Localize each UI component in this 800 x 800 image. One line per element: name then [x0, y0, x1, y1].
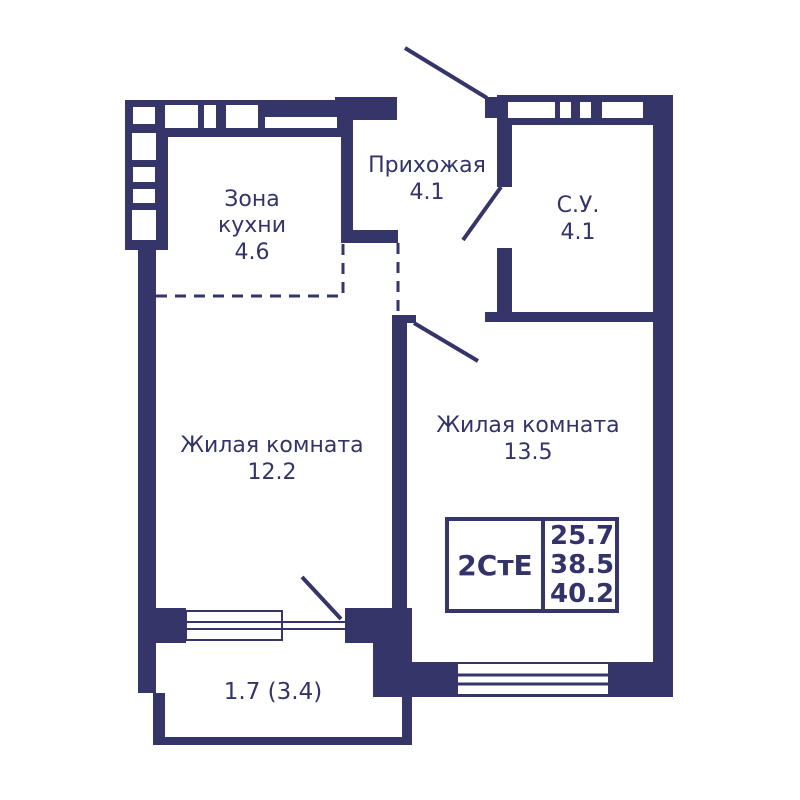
vent-cutout	[133, 107, 155, 124]
entrance-door-swing	[405, 48, 487, 98]
room-area: 4.1	[347, 180, 507, 206]
room-label-living-left: Жилая комната 12.2	[142, 433, 402, 486]
room-name: Жилая комната	[142, 433, 402, 459]
wall-hall-niche-bottom	[341, 230, 398, 243]
apartment-type: 2СтЕ	[449, 521, 545, 609]
vent-cutout	[165, 105, 198, 128]
room-door-swing	[414, 323, 478, 361]
area-living: 25.7	[550, 522, 615, 551]
balcony-window	[185, 610, 283, 641]
room-area: 4.6	[187, 240, 317, 266]
room-area: 12.2	[142, 460, 402, 486]
balcony-door-swing	[302, 577, 341, 619]
vent-cutout	[132, 133, 156, 160]
vent-cutout	[133, 189, 155, 203]
room-area: 4.1	[518, 220, 638, 246]
vent-cutout	[560, 102, 571, 118]
room-label-living-right: Жилая комната 13.5	[398, 413, 658, 466]
apartment-areas: 25.7 38.5 40.2	[545, 521, 615, 609]
room-area: 13.5	[398, 440, 658, 466]
vent-cutout	[226, 105, 258, 128]
wall-divider-lower	[373, 643, 412, 697]
vent-cutout	[580, 102, 591, 118]
vent-cutout	[132, 210, 156, 240]
wall-right-outer	[653, 95, 673, 697]
balcony-rail-bottom	[153, 737, 411, 745]
vent-cutout	[265, 117, 337, 128]
room-label-balcony: 1.7 (3.4)	[173, 679, 373, 705]
room-name: Прихожая	[347, 153, 507, 179]
vent-cutout	[602, 102, 643, 118]
floor-plan: Зона кухни 4.6 Прихожая 4.1 С.У. 4.1 Жил…	[0, 0, 800, 800]
room-name: Зона кухни	[187, 187, 317, 239]
vent-cutout	[204, 105, 216, 128]
balcony-rail-right	[402, 695, 412, 745]
room-label-hallway: Прихожая 4.1	[347, 153, 507, 206]
right-room-window	[458, 664, 608, 694]
area-total-balcony: 40.2	[550, 580, 615, 609]
room-area: 1.7 (3.4)	[173, 679, 373, 705]
area-total: 38.5	[550, 551, 615, 580]
wall-sill-block	[345, 608, 412, 643]
room-label-bathroom: С.У. 4.1	[518, 193, 638, 246]
room-name: С.У.	[518, 193, 638, 219]
wall-bathroom-left-lower	[497, 248, 512, 315]
room-name: Жилая комната	[398, 413, 658, 439]
room-label-kitchen: Зона кухни 4.6	[187, 187, 317, 266]
vent-cutout	[133, 167, 155, 182]
vent-cutout	[508, 102, 555, 118]
apartment-stamp: 2СтЕ 25.7 38.5 40.2	[445, 517, 619, 613]
wall-mid-right	[485, 312, 653, 322]
wall-left-of-window	[153, 608, 186, 643]
